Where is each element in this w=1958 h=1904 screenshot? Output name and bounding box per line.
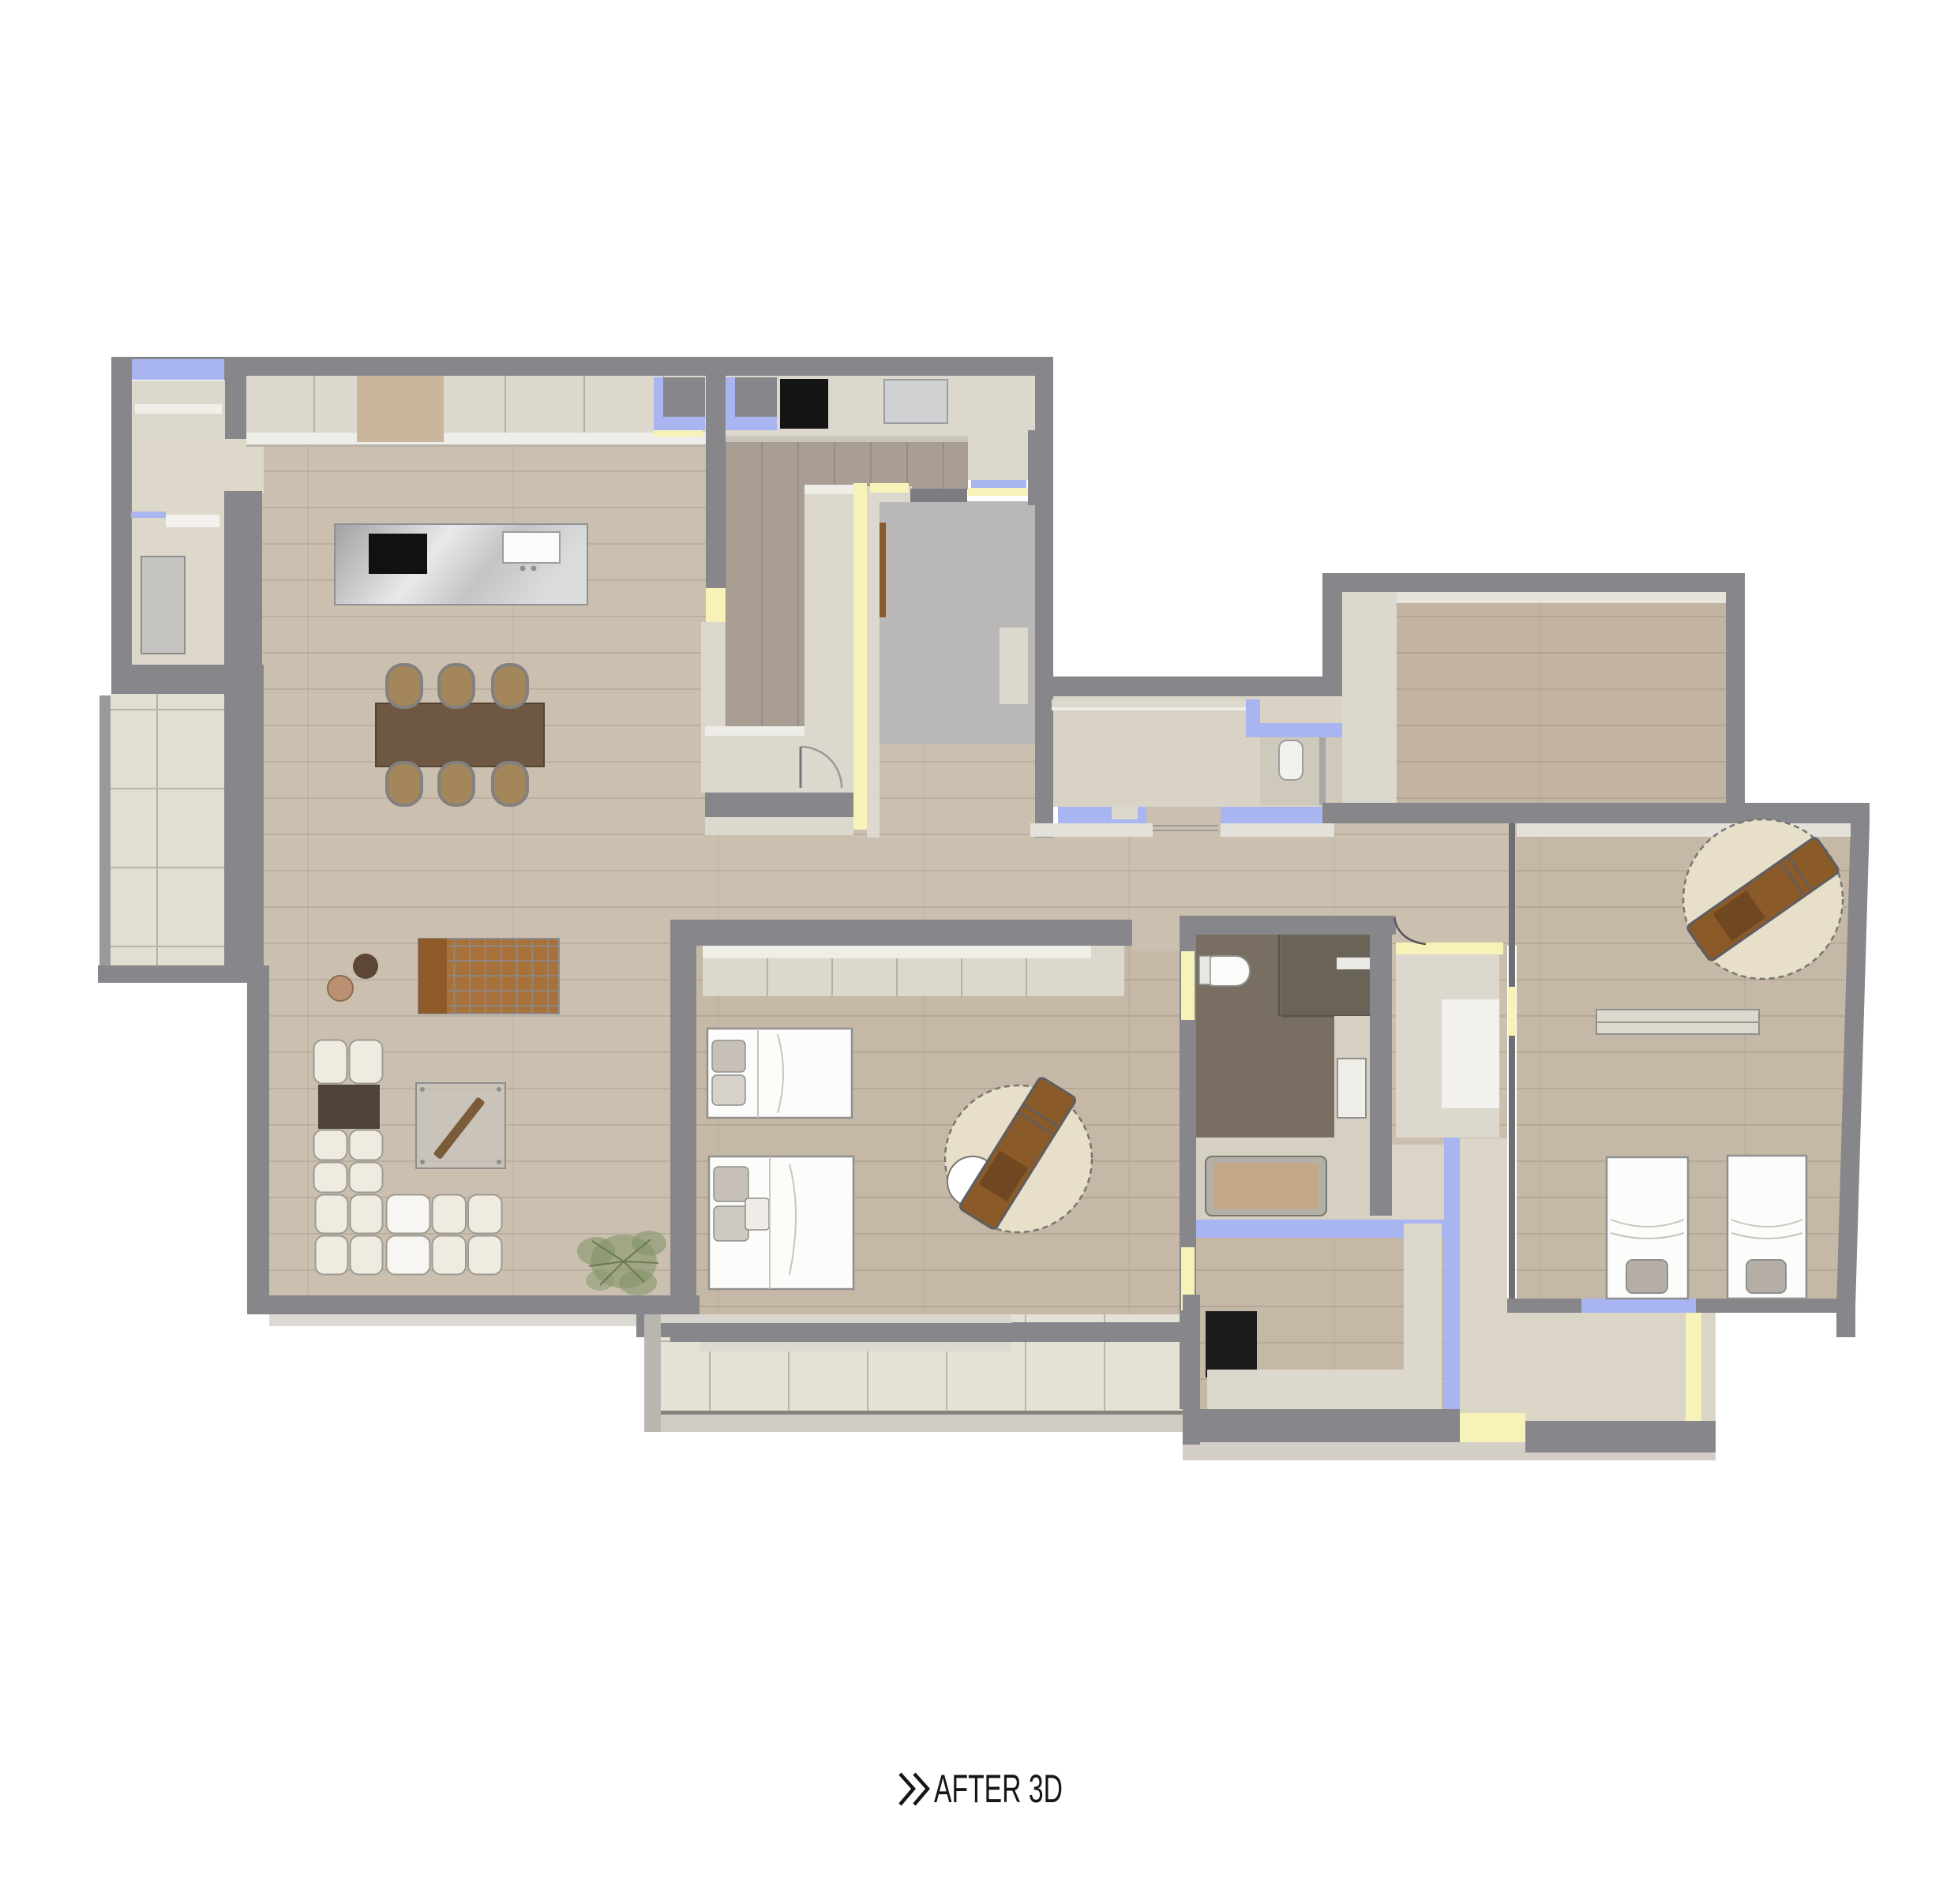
svg-text:AFTER 3D: AFTER 3D — [934, 1767, 1063, 1811]
